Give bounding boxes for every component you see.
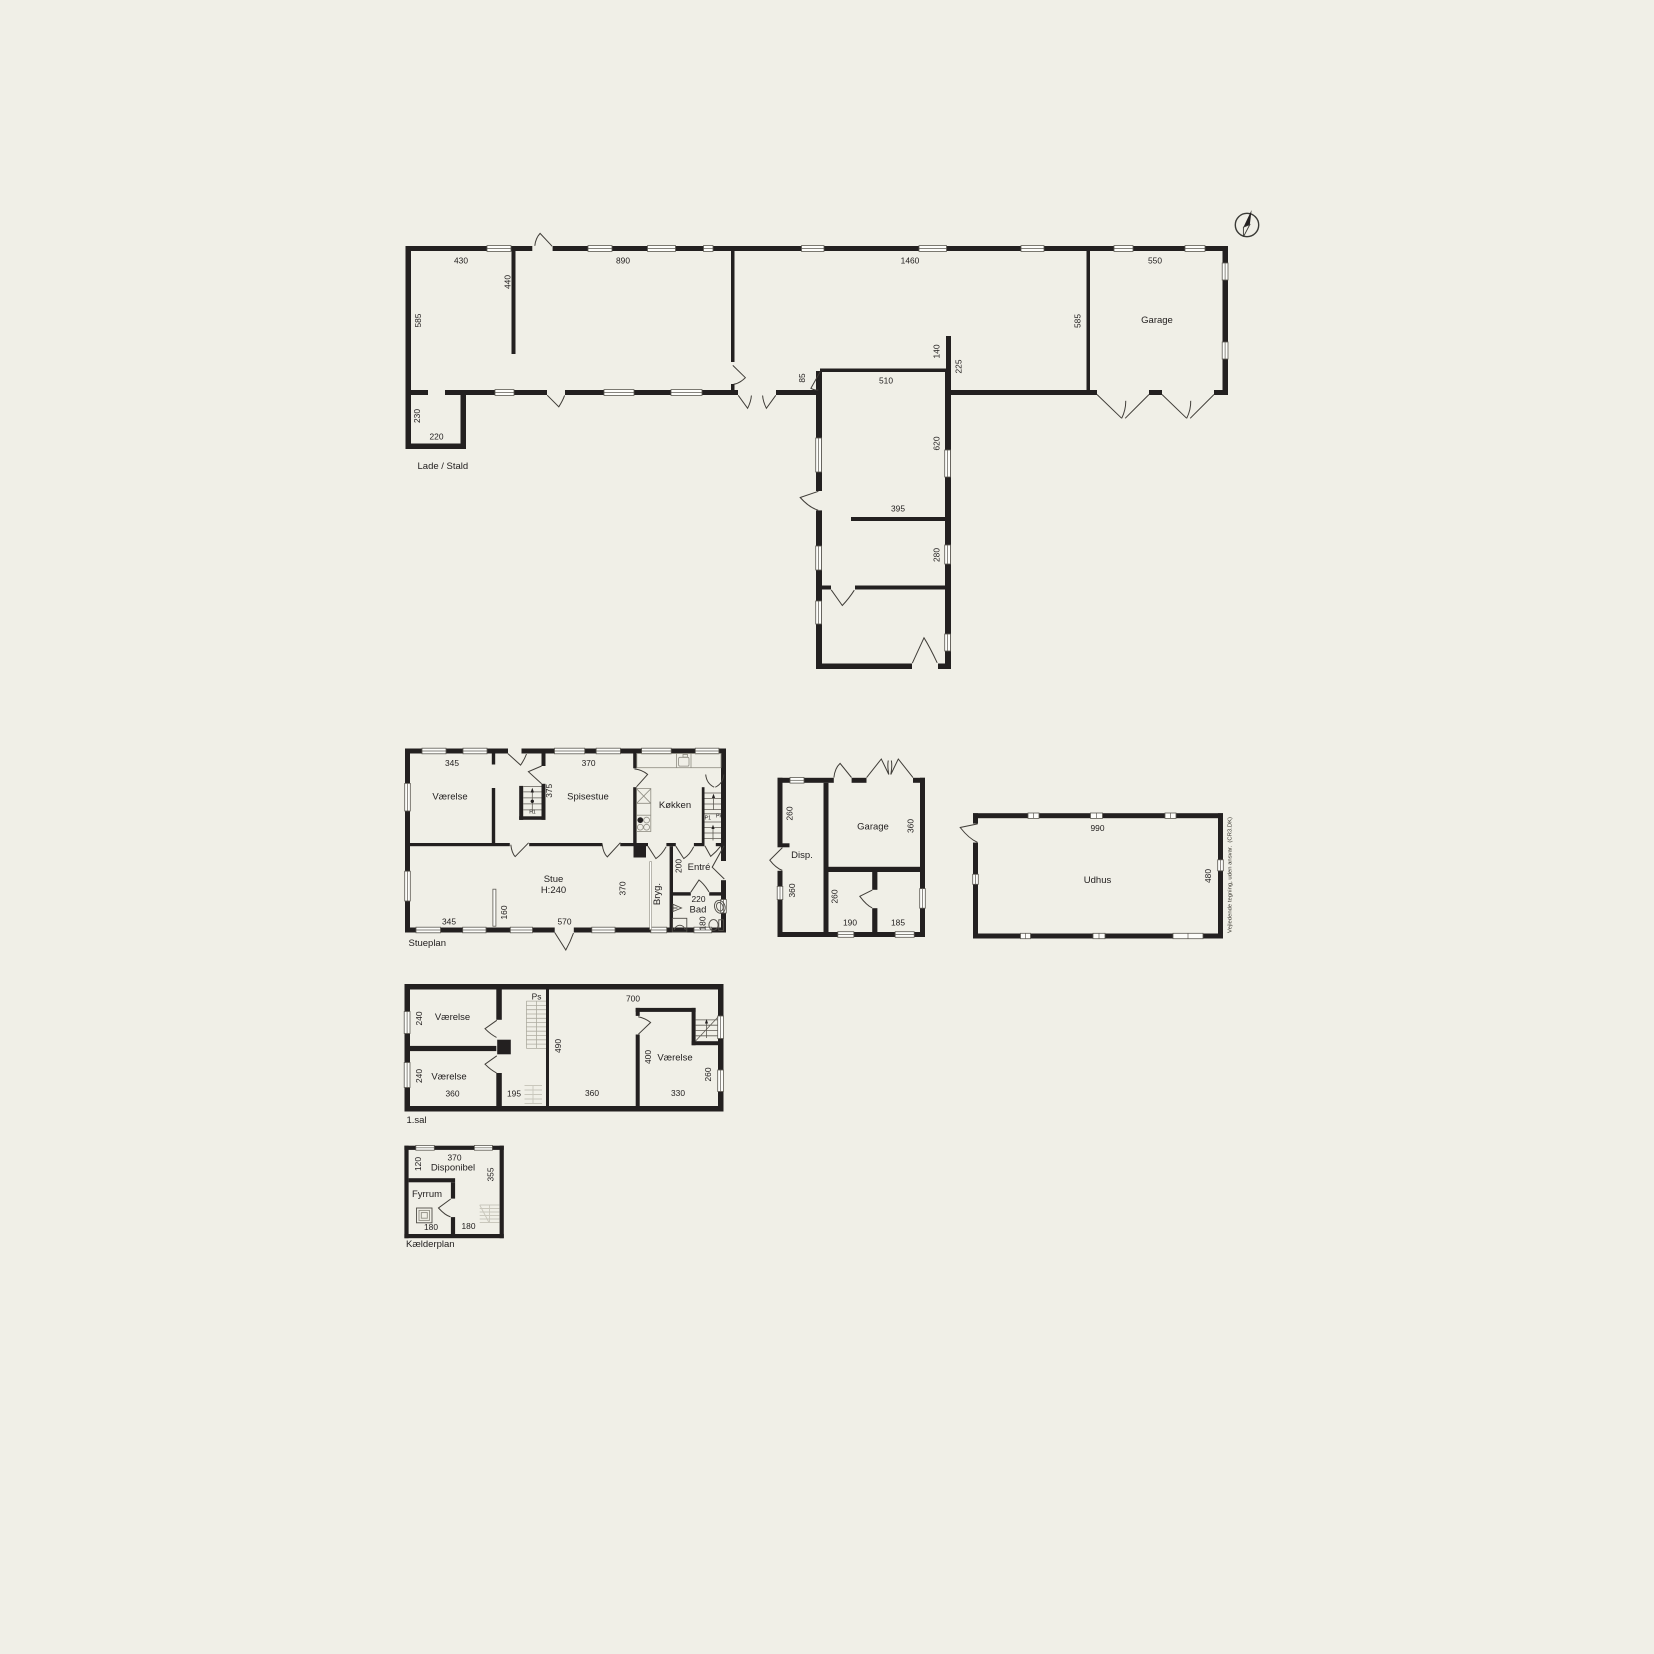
svg-text:430: 430	[454, 255, 468, 265]
svg-text:Fyrrum: Fyrrum	[412, 1189, 442, 1200]
svg-text:360: 360	[906, 819, 916, 833]
svg-text:360: 360	[787, 883, 797, 897]
svg-text:Værelse: Værelse	[435, 1012, 470, 1023]
svg-text:Vejledende tegning, uden ansva: Vejledende tegning, uden ansvar. (CR3.DK…	[1228, 817, 1234, 933]
svg-text:Kælderplan: Kælderplan	[406, 1239, 455, 1250]
svg-text:395: 395	[891, 504, 905, 514]
svg-text:195: 195	[507, 1089, 521, 1099]
svg-text:Stue: Stue	[544, 874, 564, 885]
svg-text:585: 585	[1073, 314, 1083, 328]
svg-text:Spisestue: Spisestue	[567, 792, 609, 803]
svg-text:Bad: Bad	[690, 905, 707, 916]
svg-text:585: 585	[413, 313, 423, 327]
svg-text:Stueplan: Stueplan	[409, 938, 447, 949]
svg-text:180: 180	[424, 1222, 438, 1232]
svg-text:Bryg.: Bryg.	[652, 883, 663, 905]
svg-text:370: 370	[448, 1153, 462, 1163]
svg-text:375: 375	[544, 783, 554, 797]
svg-text:P1: P1	[705, 816, 712, 822]
svg-text:120: 120	[413, 1157, 423, 1171]
svg-text:490: 490	[553, 1039, 563, 1053]
svg-text:1.sal: 1.sal	[407, 1115, 427, 1126]
svg-text:Værelse: Værelse	[432, 792, 467, 803]
svg-text:360: 360	[446, 1089, 460, 1099]
svg-text:620: 620	[932, 436, 942, 450]
svg-text:400: 400	[643, 1050, 653, 1064]
svg-text:220: 220	[692, 894, 706, 904]
svg-text:700: 700	[626, 994, 640, 1004]
svg-text:140: 140	[932, 344, 942, 358]
svg-text:355: 355	[486, 1167, 496, 1181]
svg-text:200: 200	[674, 859, 684, 873]
svg-text:H:240: H:240	[541, 885, 566, 896]
svg-text:370: 370	[618, 881, 628, 895]
svg-text:550: 550	[1148, 255, 1162, 265]
svg-text:185: 185	[891, 918, 905, 928]
svg-text:Værelse: Værelse	[431, 1072, 466, 1083]
svg-text:190: 190	[843, 918, 857, 928]
svg-text:Pk: Pk	[716, 814, 723, 820]
svg-text:220: 220	[430, 432, 444, 442]
svg-text:Udhus: Udhus	[1084, 875, 1112, 886]
svg-text:Garage: Garage	[1141, 315, 1173, 326]
svg-text:Køkken: Køkken	[659, 800, 691, 811]
svg-text:180: 180	[698, 916, 708, 930]
svg-text:260: 260	[785, 806, 795, 820]
svg-text:570: 570	[558, 917, 572, 927]
svg-text:480: 480	[1203, 869, 1213, 883]
svg-text:990: 990	[1091, 823, 1105, 833]
svg-text:240: 240	[414, 1011, 424, 1025]
svg-text:Disp.: Disp.	[791, 850, 813, 861]
svg-text:Disponibel: Disponibel	[431, 1163, 475, 1174]
svg-text:345: 345	[445, 758, 459, 768]
svg-text:230: 230	[412, 409, 422, 423]
svg-text:280: 280	[932, 548, 942, 562]
svg-text:Værelse: Værelse	[657, 1053, 692, 1064]
svg-text:345: 345	[442, 917, 456, 927]
svg-text:890: 890	[616, 255, 630, 265]
svg-text:260: 260	[703, 1067, 713, 1081]
svg-text:P1: P1	[529, 809, 536, 815]
svg-text:330: 330	[671, 1088, 685, 1098]
svg-text:260: 260	[830, 889, 840, 903]
svg-text:240: 240	[414, 1069, 424, 1083]
svg-text:85: 85	[797, 373, 807, 383]
svg-text:Lade / Stald: Lade / Stald	[418, 461, 469, 472]
svg-text:225: 225	[954, 359, 964, 373]
svg-text:Entré: Entré	[688, 862, 711, 873]
svg-text:160: 160	[499, 905, 509, 919]
svg-text:Garage: Garage	[857, 822, 889, 833]
svg-text:180: 180	[462, 1221, 476, 1231]
svg-text:440: 440	[503, 275, 513, 289]
svg-text:360: 360	[585, 1088, 599, 1098]
svg-text:Ps: Ps	[532, 992, 542, 1002]
svg-text:1460: 1460	[901, 255, 920, 265]
svg-text:370: 370	[582, 758, 596, 768]
svg-text:510: 510	[879, 376, 893, 386]
